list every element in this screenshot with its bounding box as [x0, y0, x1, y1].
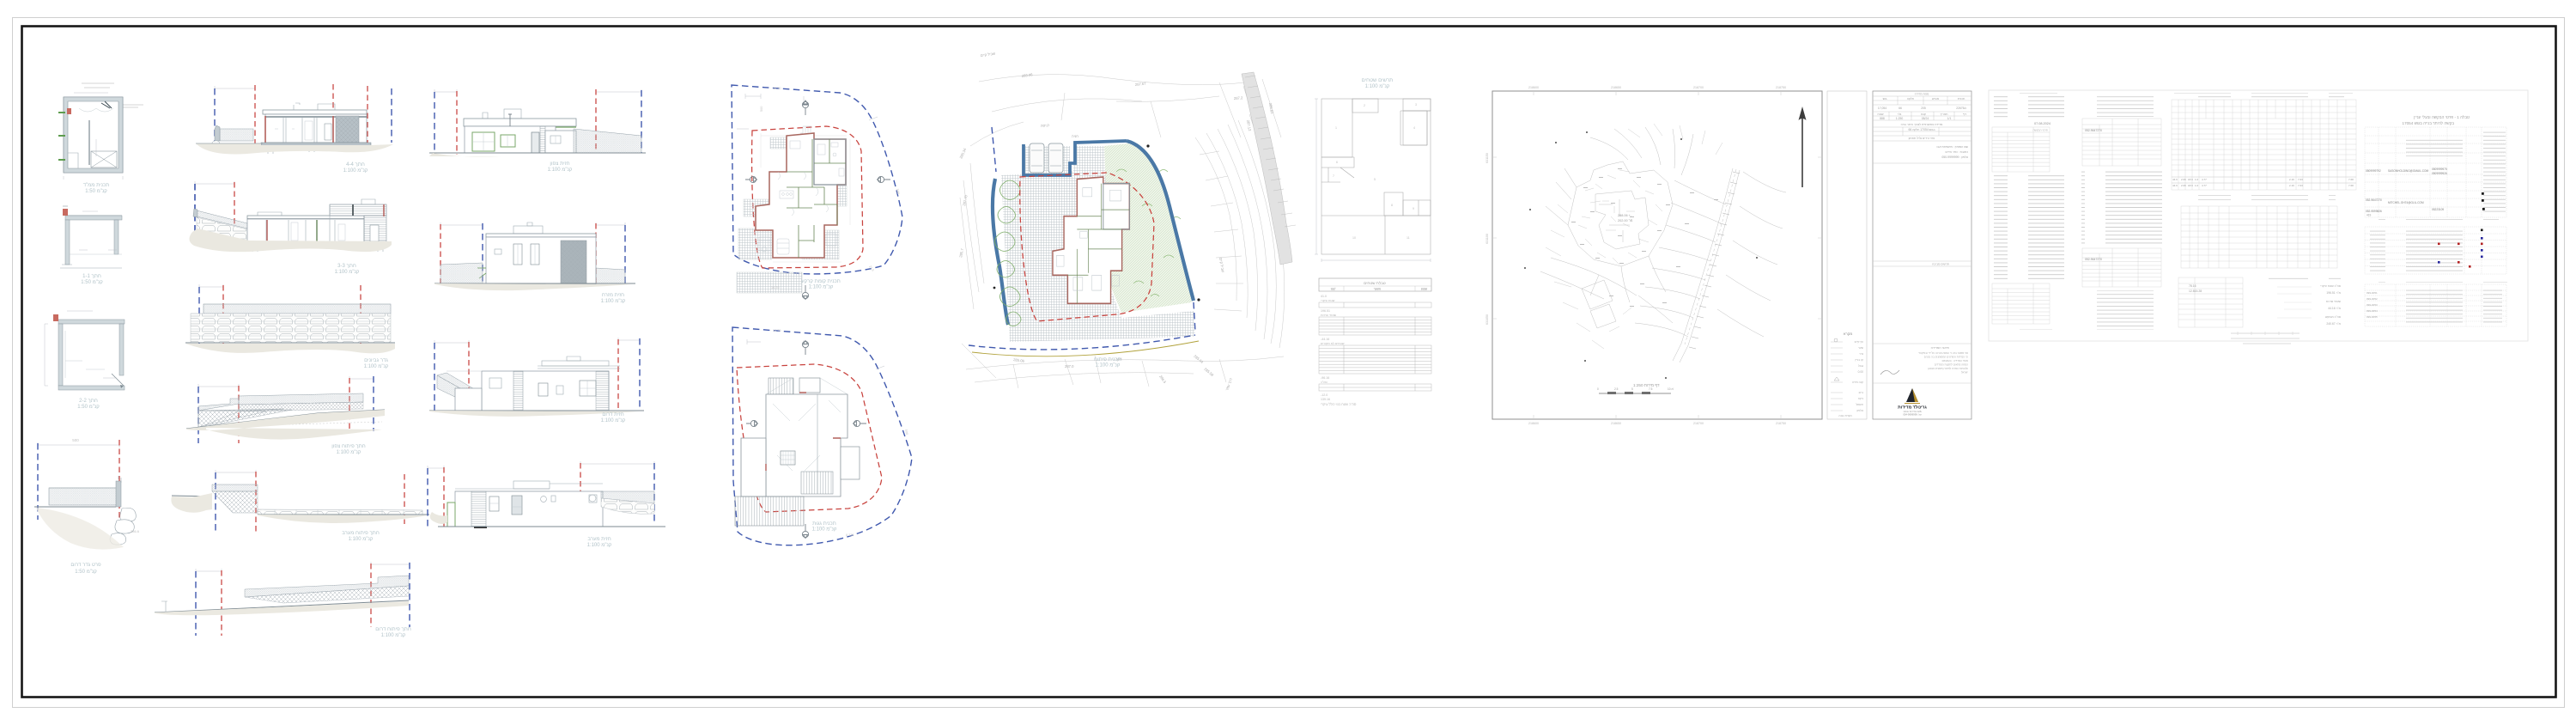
svg-text:3: 3 — [1415, 103, 1417, 107]
svg-text:2.16: 2.16 — [2289, 184, 2294, 187]
svg-text:טבלת שטחים: טבלת שטחים — [1364, 281, 1386, 285]
svg-text:תכנית ממ"ד: תכנית ממ"ד — [83, 183, 110, 188]
svg-text:7.68: 7.68 — [2348, 184, 2354, 187]
svg-text:052-9647270: 052-9647270 — [2366, 198, 2382, 202]
svg-text:דף: דף — [1963, 113, 1966, 116]
svg-text:196.51: 196.51 — [1321, 309, 1330, 313]
svg-text:2-2 חתך: 2-2 חתך — [79, 399, 98, 404]
svg-text:286.6: 286.6 — [131, 529, 140, 533]
svg-text:מפת מדידה: מפת מדידה — [1915, 93, 1929, 96]
svg-text:196.51 מ"ר: 196.51 מ"ר — [2326, 291, 2341, 295]
svg-text:גבול: גבול — [1858, 364, 1864, 368]
svg-text:500: 500 — [72, 438, 79, 442]
svg-text:631050: 631050 — [1485, 314, 1489, 325]
svg-text:חשמל: חשמל — [1856, 403, 1863, 406]
svg-text:099-0054: 099-0054 — [2366, 309, 2378, 313]
svg-text:-96.16: -96.16 — [1321, 376, 1329, 380]
svg-text:כתובת : כפר ורדים: כתובת : כפר ורדים — [1946, 150, 1969, 154]
svg-text:1.0: 1.0 — [2195, 178, 2199, 181]
svg-text:7.63: 7.63 — [2298, 184, 2303, 187]
svg-text:7.5: 7.5 — [1649, 387, 1653, 391]
svg-text:תרשים סביבה: תרשים סביבה — [1932, 263, 1950, 266]
svg-text:חזית דרום: חזית דרום — [602, 412, 623, 417]
svg-text:08/24: 08/24 — [1922, 117, 1929, 120]
svg-text:5: 5 — [1631, 387, 1633, 391]
svg-text:1:50 קנ"מ: 1:50 קנ"מ — [75, 570, 97, 575]
svg-text:מקרא: מקרא — [1844, 332, 1853, 336]
svg-text:8: 8 — [1391, 204, 1393, 207]
svg-text:218600: 218600 — [1528, 86, 1539, 89]
svg-text:1:50 קנ"מ: 1:50 קנ"מ — [81, 280, 103, 285]
svg-text:218750: 218750 — [1776, 422, 1786, 425]
svg-text:1:100 קנ"מ: 1:100 קנ"מ — [364, 364, 389, 369]
svg-text:תיאור: תיאור — [1374, 288, 1382, 291]
svg-text:288.06 +-: 288.06 +- — [1618, 214, 1632, 217]
svg-text:1.0: 1.0 — [2195, 184, 2199, 187]
svg-text:1:100 קנ"מ: 1:100 קנ"מ — [349, 537, 374, 542]
svg-text:218700: 218700 — [1693, 86, 1704, 89]
svg-text:099-0051: 099-0051 — [2366, 291, 2378, 295]
svg-text:תכנית גגות: תכנית גגות — [812, 521, 836, 527]
svg-text:7.63: 7.63 — [2298, 178, 2303, 181]
svg-text:טלפון : 050-9999999: טלפון : 050-9999999 — [1941, 155, 1968, 159]
svg-text:054-9999999 :טל: 054-9999999 :טל — [1903, 413, 1922, 417]
svg-text:1:250 דף מידות: 1:250 דף מידות — [1633, 383, 1660, 387]
svg-text:44.9: 44.9 — [2172, 184, 2178, 187]
svg-text:052-9647270: 052-9647270 — [2085, 258, 2102, 261]
svg-text:3-3 חתך: 3-3 חתך — [337, 264, 356, 269]
svg-text:0.00: 0.00 — [1858, 370, 1864, 374]
svg-text:קנמ: קנמ — [1921, 113, 1926, 116]
svg-text:1:100 קנ"מ: 1:100 קנ"מ — [343, 168, 368, 174]
svg-text:2: 2 — [1364, 104, 1365, 107]
svg-text:טלפון: טלפון — [1856, 409, 1863, 412]
svg-text:287.0: 287.0 — [1065, 364, 1074, 369]
svg-text:פרט גדר דרום: פרט גדר דרום — [70, 563, 101, 568]
svg-text:אני מאשר בזה כי המפה נערכה על: אני מאשר בזה כי המפה נערכה על ידי ובפיקו… — [1918, 351, 1968, 355]
svg-text:שטחי שירות: שטחי שירות — [1321, 314, 1337, 317]
svg-text:1:50 קנ"מ: 1:50 קנ"מ — [85, 189, 107, 194]
svg-text:סה"כ שטח עיקרי: סה"כ שטח עיקרי — [2320, 284, 2341, 288]
svg-text:0: 0 — [1597, 387, 1599, 391]
svg-text:419: 419 — [2366, 214, 2372, 217]
svg-text:חזית צפון: חזית צפון — [550, 161, 569, 167]
svg-text:תיאור המדידה: תיאור המדידה — [1931, 346, 1950, 350]
svg-text:1:100 קנ"מ: 1:100 קנ"מ — [601, 418, 626, 423]
svg-text:1:100 קנ"מ: 1:100 קנ"מ — [587, 543, 612, 548]
svg-text:099-0055: 099-0055 — [2366, 315, 2378, 319]
svg-text:44.16 מ"ר: 44.16 מ"ר — [2328, 307, 2341, 310]
svg-text:240.67 מ"ר: 240.67 מ"ר — [2326, 322, 2341, 326]
svg-text:218650: 218650 — [1611, 86, 1621, 89]
svg-text:1/1: 1/1 — [1947, 117, 1952, 120]
svg-text:כפר ורדים גליל תחתון: כפר ורדים גליל תחתון — [1909, 137, 1935, 140]
svg-text:2.5: 2.5 — [1614, 387, 1619, 391]
svg-text:1:100 קנ"מ: 1:100 קנ"מ — [809, 285, 834, 290]
svg-text:מ'ר: מ'ר — [1898, 113, 1902, 116]
svg-text:14.70: 14.70 — [771, 286, 780, 289]
svg-text:שטח עיקרי: שטח עיקרי — [1321, 299, 1335, 302]
svg-text:ישראל: ישראל — [1961, 371, 1968, 375]
svg-text:287.2: 287.2 — [1234, 95, 1243, 101]
svg-text:631100: 631100 — [1485, 234, 1489, 244]
svg-text:218600: 218600 — [1528, 422, 1539, 425]
svg-text:SASONHOLDING@GMAIL.COM: SASONHOLDING@GMAIL.COM — [2388, 169, 2429, 173]
svg-text:2.16: 2.16 — [2289, 178, 2294, 181]
svg-text:1:100 קנ"מ: 1:100 קנ"מ — [337, 450, 361, 455]
svg-text:12.815.28: 12.815.28 — [2189, 289, 2202, 293]
svg-text:1:100 קנ"מ: 1:100 קנ"מ — [812, 527, 837, 533]
svg-text:4.77: 4.77 — [2202, 178, 2207, 181]
svg-text:תכנית פיתוח: תכנית פיתוח — [1094, 357, 1121, 362]
svg-text:סה"כ שטח בנוי כולל עיקרי: סה"כ שטח בנוי כולל עיקרי — [1321, 403, 1357, 406]
svg-text:1:100 קנ"מ: 1:100 קנ"מ — [335, 270, 360, 275]
svg-text:14.70: 14.70 — [773, 329, 781, 332]
svg-text:קו בניין: קו בניין — [1855, 358, 1863, 362]
svg-text:מס': מס' — [1331, 288, 1336, 291]
svg-text:שם המזמין : מישפחת אבו: שם המזמין : מישפחת אבו — [1937, 145, 1969, 149]
svg-text:1:50 קנ"מ: 1:50 קנ"מ — [77, 405, 100, 410]
svg-text:139.16: 139.16 — [1321, 398, 1330, 401]
svg-text:ניקוז: ניקוז — [1858, 397, 1864, 400]
svg-text:1:100 קנ"מ: 1:100 קנ"מ — [1365, 84, 1390, 89]
svg-text:2.06: 2.06 — [2181, 178, 2186, 181]
svg-text:גוש: גוש — [1883, 97, 1887, 101]
svg-text:8.238: 8.238 — [846, 533, 854, 537]
svg-text:1:100 קנ"מ: 1:100 קנ"מ — [601, 299, 626, 304]
svg-text:2.06: 2.06 — [2181, 184, 2186, 187]
svg-text:שטחי שירות: שטחי שירות — [2326, 300, 2342, 303]
svg-text:1:100 קנ"מ: 1:100 קנ"מ — [1096, 363, 1121, 369]
svg-text:4: 4 — [1413, 126, 1415, 130]
svg-text:18.9: 18.9 — [2188, 184, 2193, 187]
svg-text:מגרש: מגרש — [1932, 97, 1940, 101]
svg-text:099-0053: 099-0053 — [2366, 303, 2378, 307]
svg-text:631150: 631150 — [1485, 153, 1489, 163]
svg-text:052-9647270: 052-9647270 — [2085, 129, 2102, 132]
svg-text:202.00 מר: 202.00 מר — [1618, 219, 1633, 222]
svg-text:66: 66 — [1899, 107, 1902, 110]
svg-text:6: 6 — [1336, 161, 1338, 164]
svg-text:5: 5 — [1374, 178, 1376, 181]
svg-text:9: 9 — [1413, 207, 1414, 210]
svg-text:500: 500 — [760, 107, 763, 112]
svg-text:41.0: 41.0 — [1321, 295, 1327, 298]
svg-text:1:250: 1:250 — [1896, 117, 1904, 120]
svg-text:עץ קיים: עץ קיים — [1855, 340, 1863, 344]
svg-text:11: 11 — [1406, 236, 1410, 240]
svg-text:17,054: 17,054 — [1878, 107, 1886, 110]
svg-text:052-9599826: 052-9599826 — [2366, 210, 2382, 213]
svg-text:תכנית: תכנית — [1958, 97, 1965, 101]
svg-text:שער: שער — [1858, 346, 1864, 350]
svg-text:888: 888 — [1880, 117, 1885, 120]
svg-text:4.77: 4.77 — [2202, 184, 2207, 187]
svg-text:סה"כ מבוקש: סה"כ מבוקש — [2325, 315, 2342, 319]
svg-text:חתך פיתוח צפון: חתך פיתוח צפון — [331, 444, 365, 449]
svg-text:78.16: 78.16 — [2189, 284, 2196, 288]
svg-text:וכי המידות והפרטים המסומנים בה: וכי המידות והפרטים המסומנים בה נכונים — [1924, 356, 1968, 359]
svg-text:1: 1 — [1335, 126, 1337, 130]
svg-text:-12.0: -12.0 — [1321, 393, 1327, 397]
svg-text:07.08.2024: 07.08.2024 — [2034, 122, 2050, 125]
svg-text:218750: 218750 — [1776, 86, 1786, 89]
svg-text:בגוש 17054 חלקה 66: בגוש 17054 חלקה 66 — [1908, 128, 1935, 131]
svg-text:טבלה 1 - פרטי הבקשה ובעלי עניי: טבלה 1 - פרטי הבקשה ובעלי עניין — [2414, 115, 2470, 119]
svg-text:218650: 218650 — [1611, 422, 1621, 425]
svg-text:MITCHEL.GH74@GLIL.COM: MITCHEL.GH74@GLIL.COM — [2388, 201, 2424, 204]
svg-text:קנה מידה: קנה מידה — [1852, 381, 1863, 384]
svg-text:099-0052: 099-0052 — [2366, 297, 2378, 301]
svg-text:18.9: 18.9 — [2188, 178, 2193, 181]
svg-text:חזית מזרח: חזית מזרח — [602, 293, 624, 298]
svg-text:בקשה להיתר בנייה בגוש 17054: בקשה להיתר בנייה בגוש 17054 — [2403, 121, 2455, 125]
svg-text:05223109: 05223109 — [2432, 208, 2444, 211]
svg-text:כניסה: כניסה — [1041, 123, 1050, 128]
svg-text:218700: 218700 — [1693, 422, 1704, 425]
svg-text:תרשים שטחים: תרשים שטחים — [1362, 78, 1394, 83]
svg-text:חלקה: חלקה — [1907, 97, 1914, 101]
svg-text:0509999975: 0509999975 — [2432, 168, 2447, 171]
svg-text:תכנית קומת קרקע: תכנית קומת קרקע — [801, 279, 841, 284]
svg-text:פרטי הבקשה: פרטי הבקשה — [2032, 129, 2048, 132]
svg-text:10 מ': 10 מ' — [1668, 387, 1674, 391]
svg-text:גדר: גדר — [1859, 352, 1864, 356]
svg-text:ביוב: ביוב — [1858, 391, 1863, 394]
svg-text:שטח: שטח — [1421, 288, 1427, 291]
svg-text:נקודת גובה: נקודת גובה — [1838, 414, 1852, 417]
svg-text:חניה: חניה — [1072, 134, 1078, 138]
svg-text:7: 7 — [1333, 174, 1334, 178]
svg-text:205: 205 — [1921, 107, 1926, 110]
svg-text:0509999926: 0509999926 — [2432, 172, 2447, 175]
svg-text:1-1 חתך: 1-1 חתך — [82, 274, 101, 279]
svg-text:0509999792: 0509999792 — [2366, 169, 2381, 173]
svg-text:גדר גביונים: גדר גביונים — [364, 358, 388, 363]
svg-text:14.70: 14.70 — [773, 87, 781, 90]
svg-text:7.68: 7.68 — [2348, 178, 2354, 181]
svg-text:10: 10 — [1352, 236, 1356, 240]
svg-text:חתך פיתוח דרום: חתך פיתוח דרום — [375, 627, 411, 632]
svg-text:תאריך: תאריך — [1941, 113, 1949, 116]
svg-text:שטח: שטח — [1878, 113, 1884, 116]
svg-text:חזית מערב: חזית מערב — [587, 537, 611, 542]
svg-text:מועד המדידה : 08/2024: מועד המדידה : 08/2024 — [1942, 359, 1968, 362]
svg-text:1:100 קנ"מ: 1:100 קנ"מ — [381, 633, 406, 638]
svg-text:המפה מתאים לתקנות המודדים: המפה מתאים לתקנות המודדים — [1935, 363, 1968, 367]
svg-text:(תשע"ט 2016) ולהנחות המרכז למי: (תשע"ט 2016) ולהנחות המרכז למיפוי — [1928, 367, 1968, 370]
svg-text:1:100 קנ"מ: 1:100 קנ"מ — [548, 168, 573, 173]
svg-text:4-4 חתך: 4-4 חתך — [346, 162, 365, 168]
svg-text:מדידה טופוגרפית לצורך היתר בני: מדידה טופוגרפית לצורך היתר בניה — [1901, 123, 1943, 126]
svg-text:שטחים לא מקורים: שטחים לא מקורים — [1321, 342, 1345, 345]
svg-text:ג/22675: ג/22675 — [1956, 107, 1966, 110]
svg-text:-44.16: -44.16 — [1321, 338, 1329, 341]
svg-text:סה"כ: סה"כ — [1321, 381, 1327, 384]
svg-text:חתך פיתוח מערב: חתך פיתוח מערב — [342, 531, 380, 536]
svg-text:44.9: 44.9 — [2172, 178, 2178, 181]
